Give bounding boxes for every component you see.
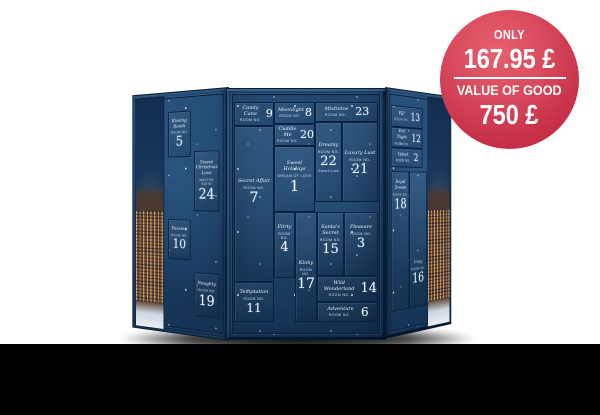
door-number: 15 [322, 243, 339, 257]
door-name: VIP [398, 111, 404, 117]
door-7: Secret Affair Room No. 7 [234, 126, 274, 282]
price-badge: ONLY 167.95 £ VALUE OF GOOD 750 £ [440, 10, 579, 149]
badge-price: 167.95 £ [464, 44, 556, 75]
door-number: 22 [320, 155, 337, 169]
door-12: Hot Night Room No. 12 [391, 127, 422, 149]
door-number: 20 [300, 129, 314, 141]
badge-only-label: ONLY [494, 28, 525, 42]
door-name: Secret Affair [238, 179, 270, 185]
door-24: Sweet Christmas Love Master Suite 24 [194, 150, 219, 211]
door-2: Velvet Room No. 2 [391, 147, 422, 168]
door-14: Wild Wonderland Room No. 14 [317, 276, 378, 302]
door-room-label: Room No. [329, 313, 350, 317]
door-number: 2 [414, 153, 419, 164]
door-number: 13 [411, 112, 420, 124]
door-21: Luxury Lust Room No. 21 [342, 122, 378, 202]
door-room-label: Room No. [329, 293, 350, 297]
badge-value: 750 £ [480, 100, 539, 131]
door-number: 4 [280, 241, 288, 255]
door-3: Pleasure Room No. 3 [344, 212, 378, 276]
door-17: Kinky Room No. 17 [295, 212, 317, 322]
door-name: Dreamy [319, 143, 339, 149]
door-room-label: Room No. [275, 232, 294, 240]
door-number: 1 [290, 179, 300, 195]
door-6: Adventure Room No. 6 [317, 302, 378, 322]
door-18: Royal Dream Room No. 18 [391, 171, 409, 312]
door-room-label: Room No. [171, 233, 188, 238]
door-name: Cuddle Me [276, 127, 299, 139]
panel-right: VIP Room No. 13 Hot Night Room No. 12 Ve… [385, 87, 451, 339]
door-room-label: Room No. [395, 141, 410, 146]
door-name: Flirty [278, 225, 292, 231]
door-number: 7 [250, 191, 259, 206]
door-name: Passion [172, 227, 187, 233]
door-room-label: Room No. [396, 159, 411, 163]
door-name: Hot Night [394, 129, 410, 141]
door-name: Moonlight [278, 108, 302, 114]
door-13: VIP Room No. 13 [391, 105, 422, 129]
badge-divider [454, 77, 566, 79]
door-name: Adventure [327, 307, 351, 313]
door-15: Santa's Secret Room No. 15 [317, 212, 344, 276]
door-number: 14 [360, 282, 377, 296]
door-number: 8 [305, 107, 312, 119]
door-22: Dreamy Room No. 22 Sweet Love [315, 122, 342, 202]
door-name: Candy Cane [236, 106, 264, 118]
door-number: 24 [199, 187, 215, 203]
bottom-black-bar [0, 344, 600, 415]
door-name: Sweet Holidays [277, 161, 313, 173]
door-name: Pleasure [350, 225, 372, 231]
door-number: 17 [297, 277, 315, 292]
door-number: 10 [173, 238, 186, 252]
door-9: Candy Cane Room No. 9 [234, 102, 274, 126]
door-name: Mistletoe [325, 107, 347, 113]
door-room-label: Room No. [394, 117, 409, 122]
door-11: Temptation Room No. 11 [234, 282, 274, 322]
door-number: 23 [355, 106, 369, 118]
door-20: Cuddle Me Room No. 20 [274, 124, 315, 146]
door-name: Royal Dream [393, 180, 408, 191]
door-room-label: Room No. [279, 114, 300, 118]
door-number: 3 [357, 237, 365, 251]
door-room-label: Room No. [350, 232, 371, 236]
door-number: 6 [361, 306, 369, 319]
door-suite-label: Master Suite [195, 178, 219, 186]
door-name: Temptation [240, 290, 269, 296]
door-5: Kissing Booth Room No. 5 [168, 111, 191, 158]
page-canvas: { "page": { "background": "#ffffff", "bo… [0, 0, 600, 415]
door-name: Kinky [299, 261, 313, 267]
door-8: Moonlight Room No. 8 [274, 102, 315, 124]
advent-calendar: Kissing Booth Room No. 5 Sweet Christmas… [127, 84, 469, 346]
door-name: Sweet Christmas Love [196, 160, 218, 177]
door-16: Cozy Room No. 16 [409, 171, 427, 308]
door-number: 16 [412, 271, 424, 287]
door-room-label: Room No. [277, 139, 298, 143]
door-sub-label: Dream of Love [278, 174, 312, 178]
door-1: Sweet Holidays Dream of Love 1 [274, 146, 315, 212]
hotel-illustration-right [427, 97, 450, 328]
door-room-label: Room No. [393, 192, 408, 196]
door-number: 19 [199, 292, 215, 309]
door-10: Passion Room No. 10 [168, 219, 191, 260]
door-name: Wild Wonderland [320, 281, 359, 293]
door-number: 11 [246, 302, 261, 315]
door-name: Kissing Booth [170, 118, 189, 130]
door-room-label: Room No. [243, 297, 264, 301]
panel-center: Candy Cane Room No. 9 Moonlight Room No.… [226, 88, 386, 340]
door-room-label: Room No. [325, 113, 346, 117]
door-name: Santa's Secret [319, 225, 342, 237]
door-number: 21 [352, 163, 369, 177]
door-name: Velvet [398, 152, 409, 158]
door-room-label: Room No. [320, 238, 341, 242]
door-23: Mistletoe Room No. 23 [315, 102, 378, 122]
door-room-label: Room No. [240, 118, 261, 122]
door-number: 9 [266, 108, 273, 120]
door-room-label: Room No. [318, 150, 339, 154]
door-number: 12 [412, 133, 421, 145]
door-19: Naughty Room No. 19 [194, 272, 219, 319]
door-room-label: Room No. [349, 158, 370, 162]
door-extra-label: Sweet Love [318, 169, 339, 173]
door-number: 18 [394, 197, 406, 212]
badge-value-label: VALUE OF GOOD [457, 83, 562, 98]
door-name: Luxury Lust [345, 151, 376, 157]
door-room-label: Room No. [171, 130, 188, 135]
hotel-illustration-left [135, 96, 164, 330]
door-room-label: Room No. [296, 268, 316, 276]
door-room-label: Room No. [243, 186, 264, 190]
door-4: Flirty Room No. 4 [274, 212, 295, 278]
door-number: 5 [176, 135, 183, 149]
panel-left: Kissing Booth Room No. 5 Sweet Christmas… [132, 87, 229, 341]
